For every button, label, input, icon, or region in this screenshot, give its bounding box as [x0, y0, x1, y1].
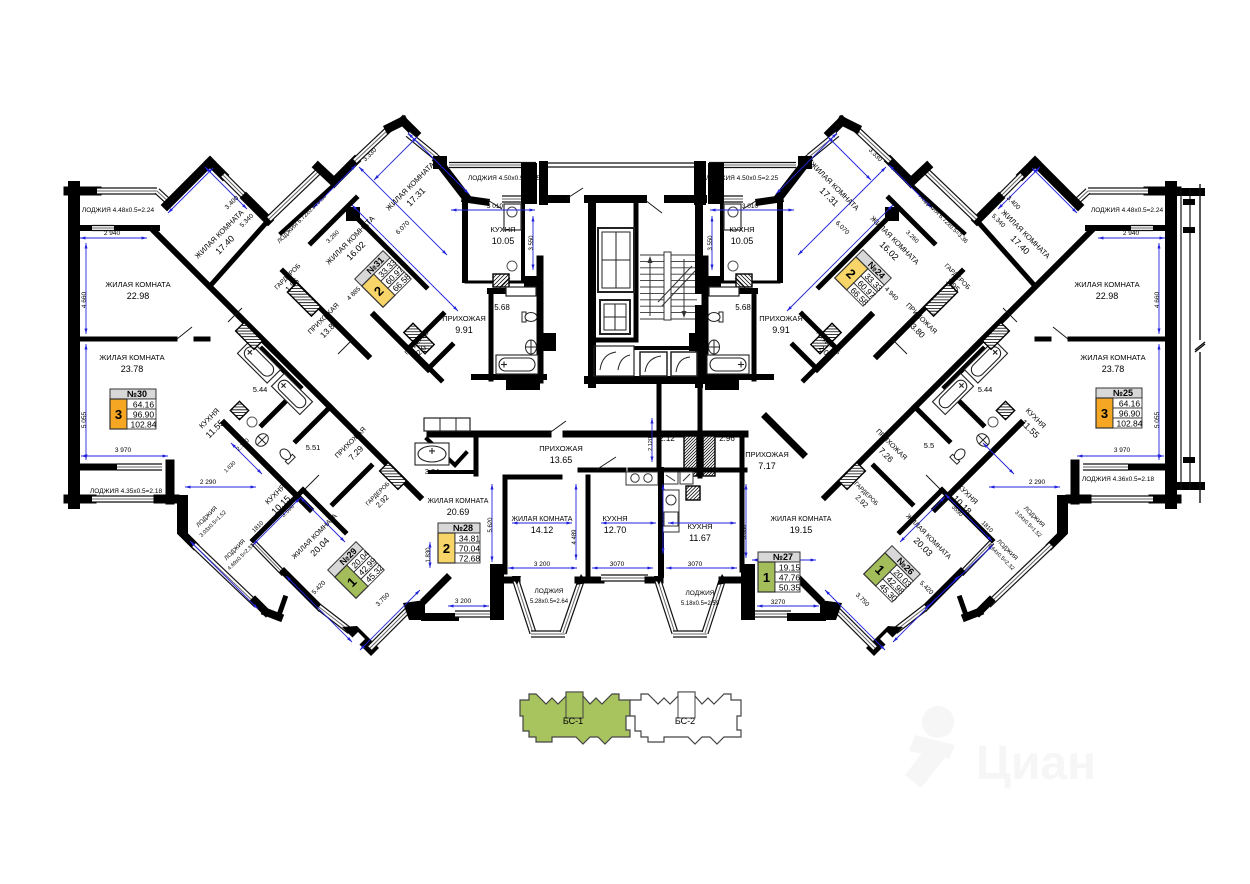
svg-text:КУХНЯ: КУХНЯ [602, 514, 627, 523]
svg-text:64.16: 64.16 [1119, 399, 1141, 409]
svg-text:7.17: 7.17 [758, 461, 776, 471]
svg-text:13.65: 13.65 [550, 455, 573, 465]
svg-text:3.84: 3.84 [425, 467, 440, 476]
svg-text:5.68: 5.68 [735, 303, 751, 312]
svg-text:3 970: 3 970 [115, 447, 132, 454]
svg-text:5.51: 5.51 [306, 443, 321, 452]
svg-text:23.78: 23.78 [1102, 364, 1125, 374]
svg-text:4 660: 4 660 [1154, 291, 1161, 308]
svg-text:ЖИЛАЯ КОМНАТА: ЖИЛАЯ КОМНАТА [105, 280, 170, 289]
svg-text:ЛОДЖИЯ: ЛОДЖИЯ [535, 588, 564, 595]
svg-text:КУХНЯ: КУХНЯ [729, 225, 754, 234]
svg-text:19.15: 19.15 [779, 563, 801, 573]
svg-text:5 055: 5 055 [1154, 411, 1161, 428]
svg-text:3 010: 3 010 [742, 203, 759, 210]
svg-text:50.35: 50.35 [779, 583, 801, 593]
svg-text:№25: №25 [1113, 388, 1133, 398]
svg-text:3 550: 3 550 [529, 235, 535, 251]
svg-text:2.96: 2.96 [719, 434, 735, 443]
svg-text:3: 3 [115, 407, 122, 422]
svg-text:3 010: 3 010 [487, 203, 504, 210]
svg-text:2 290: 2 290 [1029, 479, 1046, 486]
svg-text:2 940: 2 940 [104, 230, 121, 237]
svg-text:ЛОДЖИЯ 4.35х0.5=2.18: ЛОДЖИЯ 4.35х0.5=2.18 [90, 488, 163, 495]
svg-text:5 055: 5 055 [81, 411, 88, 428]
svg-text:№30: №30 [127, 389, 147, 399]
svg-text:70.04: 70.04 [459, 544, 481, 554]
svg-text:ЛОДЖИЯ 4.50х0.5=2.25: ЛОДЖИЯ 4.50х0.5=2.25 [706, 175, 779, 182]
svg-text:3 990: 3 990 [659, 512, 665, 528]
svg-text:5.620: 5.620 [488, 517, 494, 533]
svg-text:2 940: 2 940 [1123, 230, 1140, 237]
svg-text:9.91: 9.91 [772, 325, 790, 335]
svg-text:2.120: 2.120 [648, 437, 654, 451]
svg-text:64.16: 64.16 [133, 400, 155, 410]
svg-text:Циан: Циан [976, 737, 1096, 790]
svg-text:КУХНЯ: КУХНЯ [490, 225, 515, 234]
svg-text:ЛОДЖИЯ 4.48х0.5=2.24: ЛОДЖИЯ 4.48х0.5=2.24 [1091, 207, 1164, 214]
svg-text:3070: 3070 [688, 561, 703, 568]
svg-text:БС-2: БС-2 [675, 716, 695, 726]
svg-text:ЖИЛАЯ КОМНАТА: ЖИЛАЯ КОМНАТА [1080, 353, 1145, 362]
svg-text:5.68: 5.68 [494, 303, 510, 312]
svg-text:№28: №28 [453, 523, 473, 533]
svg-text:23.78: 23.78 [121, 364, 144, 374]
svg-text:19.15: 19.15 [790, 525, 813, 535]
svg-text:ЖИЛАЯ КОМНАТА: ЖИЛАЯ КОМНАТА [771, 516, 832, 523]
svg-text:4 489: 4 489 [572, 529, 578, 545]
svg-text:10.05: 10.05 [731, 236, 754, 246]
svg-text:ПРИХОЖАЯ: ПРИХОЖАЯ [759, 314, 803, 323]
svg-text:9.91: 9.91 [455, 325, 473, 335]
svg-text:ПРИХОЖАЯ: ПРИХОЖАЯ [745, 450, 789, 459]
svg-text:ЛОДЖИЯ 4.36х0.5=2.18: ЛОДЖИЯ 4.36х0.5=2.18 [1082, 476, 1155, 483]
svg-text:12.70: 12.70 [604, 525, 627, 535]
svg-text:ПРИХОЖАЯ: ПРИХОЖАЯ [539, 444, 583, 453]
svg-text:3 550: 3 550 [708, 235, 714, 251]
svg-text:5.44: 5.44 [978, 385, 993, 394]
svg-text:4 660: 4 660 [81, 291, 88, 308]
svg-text:ЖИЛАЯ КОМНАТА: ЖИЛАЯ КОМНАТА [1074, 280, 1139, 289]
svg-text:2 290: 2 290 [200, 479, 217, 486]
svg-text:1: 1 [763, 570, 770, 585]
svg-text:№27: №27 [773, 552, 793, 562]
svg-text:102.84: 102.84 [1117, 419, 1143, 429]
svg-text:2.12: 2.12 [659, 434, 675, 443]
svg-text:5.28х0.5=2.64: 5.28х0.5=2.64 [530, 599, 569, 605]
svg-text:11.67: 11.67 [689, 533, 711, 543]
svg-text:47.76: 47.76 [779, 573, 801, 583]
svg-text:ЖИЛАЯ КОМНАТА: ЖИЛАЯ КОМНАТА [512, 516, 573, 523]
svg-text:3: 3 [1101, 406, 1108, 421]
svg-text:3070: 3070 [610, 561, 625, 568]
svg-text:1.830: 1.830 [426, 547, 432, 563]
svg-text:3 970: 3 970 [1114, 447, 1131, 454]
svg-text:22.98: 22.98 [1096, 291, 1119, 301]
svg-text:20.69: 20.69 [447, 507, 470, 517]
svg-text:3 200: 3 200 [455, 598, 472, 605]
svg-text:3 200: 3 200 [534, 561, 551, 568]
svg-text:3.830: 3.830 [742, 524, 748, 540]
svg-text:2: 2 [443, 541, 450, 556]
svg-text:3270: 3270 [771, 599, 786, 606]
svg-text:ЖИЛАЯ КОМНАТА: ЖИЛАЯ КОМНАТА [428, 498, 489, 505]
svg-text:5.18х0.5=2.59: 5.18х0.5=2.59 [681, 601, 720, 607]
svg-text:72.68: 72.68 [459, 554, 481, 564]
svg-text:5.5: 5.5 [924, 441, 934, 450]
svg-text:5.44: 5.44 [253, 385, 268, 394]
svg-text:34.81: 34.81 [459, 534, 481, 544]
svg-text:ПРИХОЖАЯ: ПРИХОЖАЯ [442, 314, 486, 323]
svg-text:96.90: 96.90 [1119, 409, 1141, 419]
svg-text:ЖИЛАЯ КОМНАТА: ЖИЛАЯ КОМНАТА [99, 353, 164, 362]
svg-text:22.98: 22.98 [127, 291, 150, 301]
svg-text:10.05: 10.05 [492, 236, 515, 246]
svg-text:ЛОДЖИЯ: ЛОДЖИЯ [686, 590, 715, 597]
svg-text:96.90: 96.90 [133, 410, 155, 420]
svg-text:БС-1: БС-1 [563, 716, 583, 726]
svg-text:ЛОДЖИЯ 4.48х0.5=2.24: ЛОДЖИЯ 4.48х0.5=2.24 [82, 207, 155, 214]
svg-text:14.12: 14.12 [531, 525, 554, 535]
svg-text:102.84: 102.84 [131, 420, 157, 430]
svg-text:КУХНЯ: КУХНЯ [687, 522, 712, 531]
svg-text:ЛОДЖИЯ 4.50х0.5=2.25: ЛОДЖИЯ 4.50х0.5=2.25 [468, 175, 541, 182]
